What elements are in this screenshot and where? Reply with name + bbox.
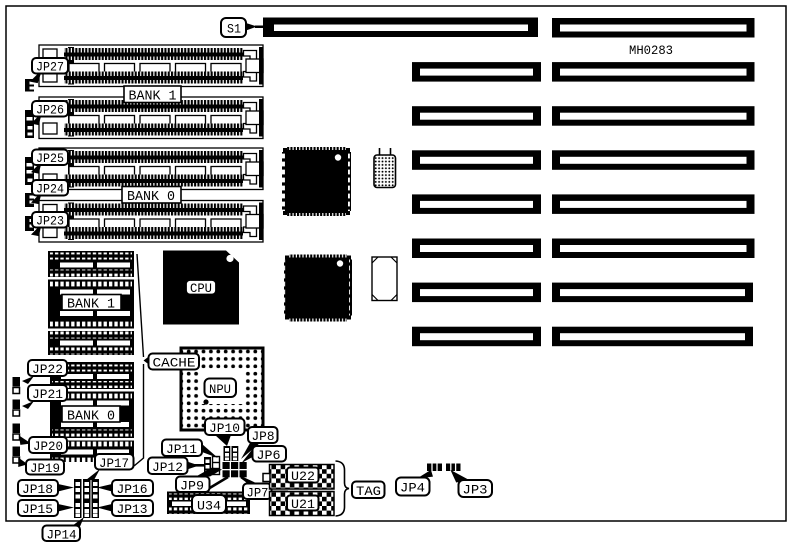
svg-text:MH0283: MH0283 — [629, 44, 673, 58]
svg-text:TAG: TAG — [356, 485, 381, 499]
svg-text:JP14: JP14 — [47, 528, 77, 542]
svg-text:U22: U22 — [291, 470, 315, 484]
svg-text:JP11: JP11 — [166, 443, 197, 457]
svg-text:JP22: JP22 — [32, 363, 63, 377]
svg-text:JP26: JP26 — [36, 104, 64, 118]
svg-text:JP12: JP12 — [152, 461, 183, 475]
svg-text:JP9: JP9 — [180, 479, 204, 493]
svg-text:JP3: JP3 — [463, 484, 488, 498]
svg-text:CACHE: CACHE — [153, 357, 196, 371]
svg-text:JP16: JP16 — [117, 483, 148, 497]
svg-text:JP4: JP4 — [400, 482, 425, 496]
svg-text:JP6: JP6 — [257, 449, 281, 463]
svg-text:U21: U21 — [291, 498, 315, 512]
svg-text:BANK 1: BANK 1 — [67, 298, 115, 313]
svg-text:JP25: JP25 — [36, 152, 64, 166]
svg-text:JP27: JP27 — [36, 61, 64, 75]
svg-text:JP17: JP17 — [99, 457, 129, 471]
svg-text:JP19: JP19 — [30, 462, 60, 476]
svg-text:JP7: JP7 — [247, 486, 269, 500]
svg-text:JP18: JP18 — [22, 483, 53, 497]
svg-text:NPU: NPU — [209, 383, 231, 397]
svg-text:JP10: JP10 — [209, 422, 240, 436]
svg-text:BANK 1: BANK 1 — [129, 90, 177, 105]
svg-text:JP15: JP15 — [22, 503, 53, 517]
svg-text:JP20: JP20 — [33, 440, 63, 454]
svg-text:S1: S1 — [227, 23, 241, 37]
svg-text:U34: U34 — [197, 500, 221, 514]
svg-text:JP24: JP24 — [36, 183, 64, 197]
svg-text:JP23: JP23 — [36, 215, 64, 229]
svg-text:JP13: JP13 — [117, 503, 148, 517]
svg-text:JP21: JP21 — [32, 388, 63, 402]
svg-text:JP8: JP8 — [252, 430, 275, 444]
svg-text:CPU: CPU — [190, 282, 212, 296]
svg-text:BANK 0: BANK 0 — [67, 409, 115, 424]
svg-text:BANK 0: BANK 0 — [127, 190, 175, 205]
